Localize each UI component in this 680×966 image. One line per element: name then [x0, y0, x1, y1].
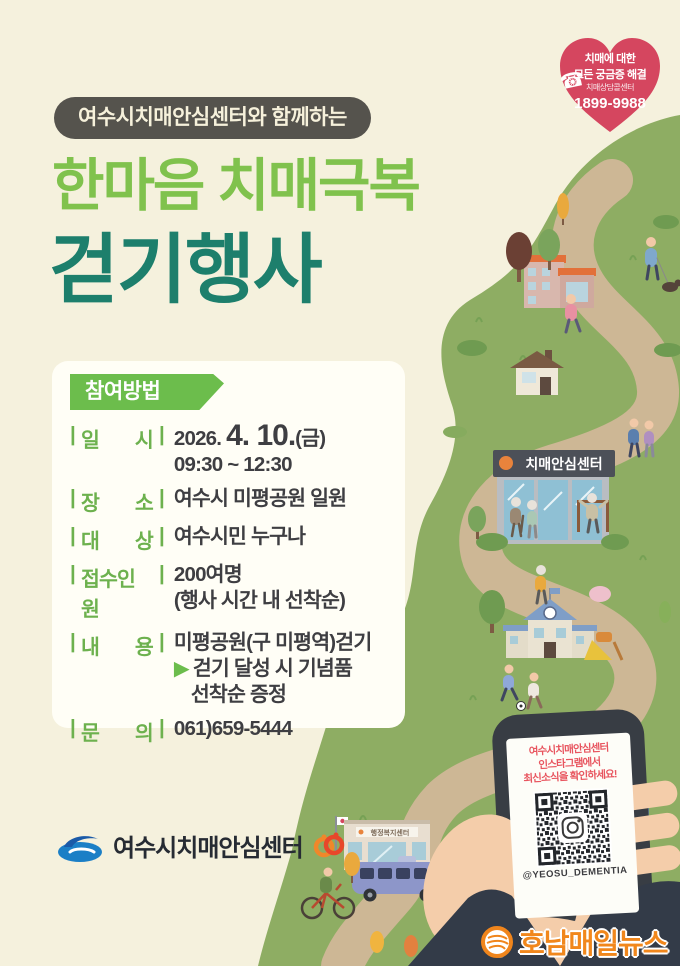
info-row-content: |내 용| 미평공원(구 미평역)걷기 ▶걷기 달성 시 기념품 선착순 증정 — [68, 630, 397, 708]
phone-screen: 여수시치매안심센터 인스타그램에서 최신소식을 확인하세요! — [506, 733, 639, 919]
info-row-contact: |문 의| 061)659-5444 — [68, 716, 397, 746]
subtitle-badge: 여수시치매안심센터와 함께하는 — [54, 97, 371, 139]
instagram-handle: @YEOSU_DEMENTIA — [513, 864, 637, 881]
footer-org-logo: 여수시치매안심센터 — [56, 828, 346, 863]
community-center-sign: 행정복지센터 — [371, 828, 410, 837]
triangle-bullet-icon: ▶ — [174, 657, 189, 680]
heart-line1: 치매에 대한 — [548, 50, 672, 66]
info-row-target: |대 상| 여수시민 누구나 — [68, 524, 397, 554]
yeosu-city-icon — [56, 829, 104, 863]
qr-code — [533, 787, 613, 867]
event-poster: 치매안심센터 — [0, 0, 680, 966]
care-center-sign-icon — [499, 456, 513, 470]
news-watermark: 호남매일뉴스 — [480, 922, 668, 962]
info-header-ribbon: 참여방법 — [70, 374, 224, 410]
heart-line3: 치매상담콜센터 — [548, 82, 672, 93]
info-rows: |일 시| 2026. 4. 10.(금) 09:30 ~ 12:30 |장 소… — [68, 423, 397, 754]
info-row-place: |장 소| 여수시 미평공원 일원 — [68, 486, 397, 516]
info-header: 참여방법 — [85, 380, 160, 403]
school-clock — [544, 607, 556, 619]
call-center-number: 1899-9988 — [548, 95, 672, 112]
info-box: 참여방법 |일 시| 2026. 4. 10.(금) 09:30 ~ 12:30… — [52, 361, 405, 728]
info-row-capacity: |접수인원| 200여명 (행사 시간 내 선착순) — [68, 562, 397, 622]
news-logo-icon — [480, 925, 514, 959]
org-name: 여수시치매안심센터 — [113, 828, 303, 863]
poster-title-line2: 걷기행사 — [49, 208, 321, 318]
info-row-date: |일 시| 2026. 4. 10.(금) 09:30 ~ 12:30 — [68, 423, 397, 478]
care-center-sign: 치매안심센터 — [525, 456, 602, 472]
ribbon-icon — [312, 830, 346, 862]
call-center-heart-logo: ☎ 치매에 대한 모든 궁금증 해결 치매상담콜센터 1899-9988 — [548, 28, 672, 142]
news-name: 호남매일뉴스 — [519, 922, 668, 962]
heart-line2: 모든 궁금증 해결 — [548, 66, 672, 82]
contact-phone-number: 061)659-5444 — [174, 716, 292, 742]
